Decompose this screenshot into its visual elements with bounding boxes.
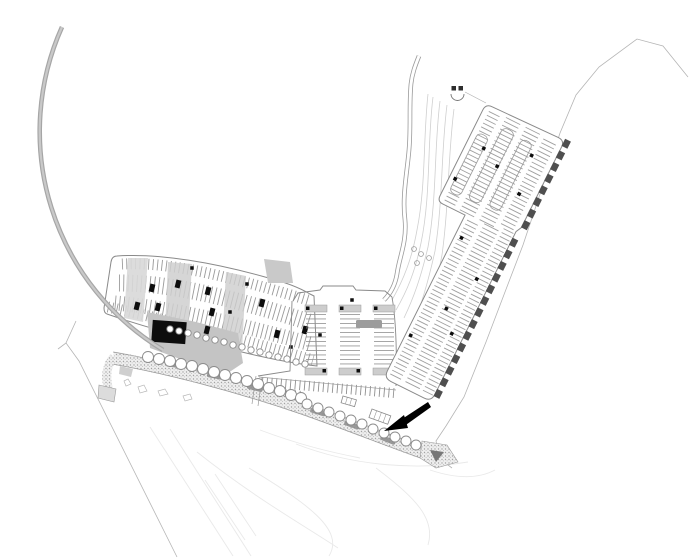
tree-canopy-icon bbox=[368, 424, 378, 434]
tree-canopy-icon bbox=[390, 432, 400, 442]
site-plan-page bbox=[0, 0, 696, 560]
tree-canopy-icon bbox=[286, 390, 297, 401]
tree-canopy-icon bbox=[154, 354, 165, 365]
tree-canopy-icon bbox=[221, 339, 227, 345]
tree-canopy-icon bbox=[357, 419, 367, 429]
tree-canopy-icon bbox=[264, 383, 275, 394]
roadside-trees bbox=[412, 247, 432, 266]
tree-canopy-icon bbox=[275, 354, 281, 360]
tree-canopy-icon bbox=[212, 337, 218, 343]
tree-canopy-icon bbox=[266, 352, 272, 358]
tree-canopy-icon bbox=[257, 349, 263, 355]
entrance-arrow bbox=[384, 402, 431, 431]
tree-canopy-icon bbox=[239, 344, 245, 350]
tree-canopy-icon bbox=[165, 356, 176, 367]
tree-pit-icon bbox=[228, 310, 232, 314]
rock-outcrops bbox=[124, 379, 192, 401]
central-lot-columns bbox=[305, 305, 395, 375]
footbridge bbox=[341, 396, 356, 407]
gatehouse-booth bbox=[459, 86, 464, 91]
tree-canopy-icon bbox=[302, 399, 312, 409]
tree-pit-icon bbox=[340, 307, 344, 311]
tree-canopy-icon bbox=[248, 347, 254, 353]
diagonal-lot-outline bbox=[356, 102, 565, 403]
tree-canopy-icon bbox=[411, 440, 421, 450]
tree-canopy-icon bbox=[231, 373, 242, 384]
tree-canopy-icon bbox=[194, 332, 200, 338]
tree-canopy-icon bbox=[419, 252, 424, 257]
tree-canopy-icon bbox=[203, 335, 209, 341]
tree-pit-icon bbox=[374, 307, 378, 311]
tree-canopy-icon bbox=[284, 356, 290, 362]
tree-canopy-icon bbox=[220, 370, 231, 381]
promenade-foot bbox=[98, 385, 116, 402]
tree-canopy-icon bbox=[253, 379, 264, 390]
tree-pit-icon bbox=[245, 282, 249, 286]
trellis bbox=[356, 320, 382, 328]
tree-canopy-icon bbox=[293, 359, 299, 365]
tree-canopy-icon bbox=[187, 361, 198, 372]
tree-pit-icon bbox=[357, 369, 361, 373]
tree-canopy-icon bbox=[324, 407, 334, 417]
tree-canopy-icon bbox=[230, 342, 236, 348]
tree-canopy-icon bbox=[415, 261, 420, 266]
tree-pit-icon bbox=[323, 369, 327, 373]
tree-canopy-icon bbox=[242, 376, 253, 387]
tree-canopy-icon bbox=[401, 436, 411, 446]
tree-canopy-icon bbox=[143, 352, 154, 363]
tree-pit-icon bbox=[306, 307, 310, 311]
tree-pit-icon bbox=[350, 298, 354, 302]
tree-canopy-icon bbox=[209, 367, 220, 378]
tree-canopy-icon bbox=[313, 403, 323, 413]
gatehouse bbox=[451, 86, 486, 103]
tree-canopy-icon bbox=[185, 330, 191, 336]
tree-canopy-icon bbox=[176, 328, 182, 334]
tree-canopy-icon bbox=[275, 386, 286, 397]
gatehouse-arc bbox=[451, 94, 464, 101]
tree-canopy-icon bbox=[176, 359, 187, 370]
site-plan-canvas bbox=[0, 0, 696, 560]
planting-tab bbox=[562, 139, 571, 149]
tree-canopy-icon bbox=[302, 361, 308, 367]
north-access-road bbox=[384, 56, 419, 300]
tree-canopy-icon bbox=[427, 256, 432, 261]
gatehouse-booth bbox=[452, 86, 457, 91]
drop-off-pad bbox=[264, 259, 293, 283]
tree-pit-icon bbox=[318, 333, 322, 337]
tree-canopy-icon bbox=[412, 247, 417, 252]
tree-canopy-icon bbox=[198, 364, 209, 375]
gatehouse-leader bbox=[465, 92, 486, 103]
tree-canopy-icon bbox=[167, 326, 173, 332]
tree-pit-icon bbox=[190, 266, 194, 270]
footbridge bbox=[369, 409, 391, 424]
tree-canopy-icon bbox=[335, 411, 345, 421]
tree-canopy-icon bbox=[346, 415, 356, 425]
